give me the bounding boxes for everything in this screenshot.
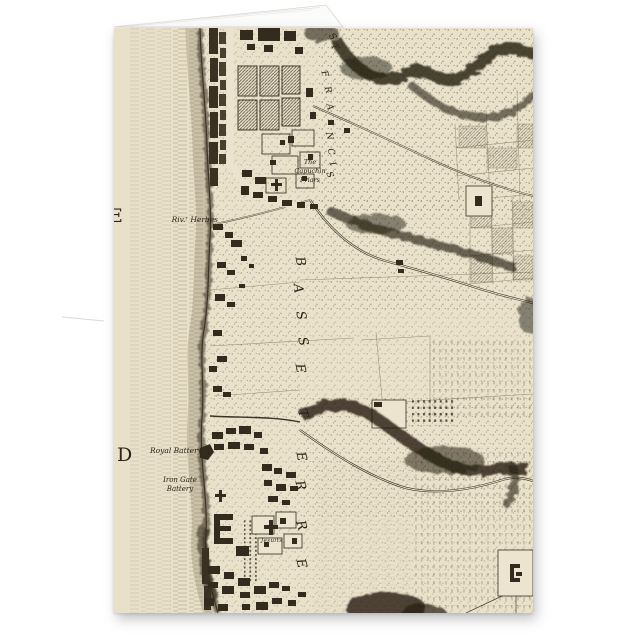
map-label-iron-gate-line2: Battery [158,486,202,494]
map-artwork [114,28,533,613]
map-label-iron-gate-line1: Iron Gate [158,477,202,485]
map-label-capuchin-line1: The [288,159,332,166]
fold-page-edge [126,10,312,27]
photo-artifact-line [62,317,104,321]
basseterre-letter: A [290,283,306,294]
sea-letter-e: E [114,205,123,227]
card-fold-flap [114,5,343,27]
sea-letter-d: D [117,444,132,466]
map-label-river-herbes: Riv.ʳ Herbes [136,216,218,224]
basseterre-letter: E [292,363,308,375]
product-photo: E D Riv.ʳ Herbes The Capuchin Friars Roy… [0,0,644,644]
map-label-royal-battery: Royal Battery [150,447,202,455]
fold-page-edge [120,8,320,27]
greeting-card[interactable]: E D Riv.ʳ Herbes The Capuchin Friars Roy… [114,28,533,613]
map-label-jesuits: Jesuits [261,539,282,545]
basseterre-letter: B [292,255,308,267]
